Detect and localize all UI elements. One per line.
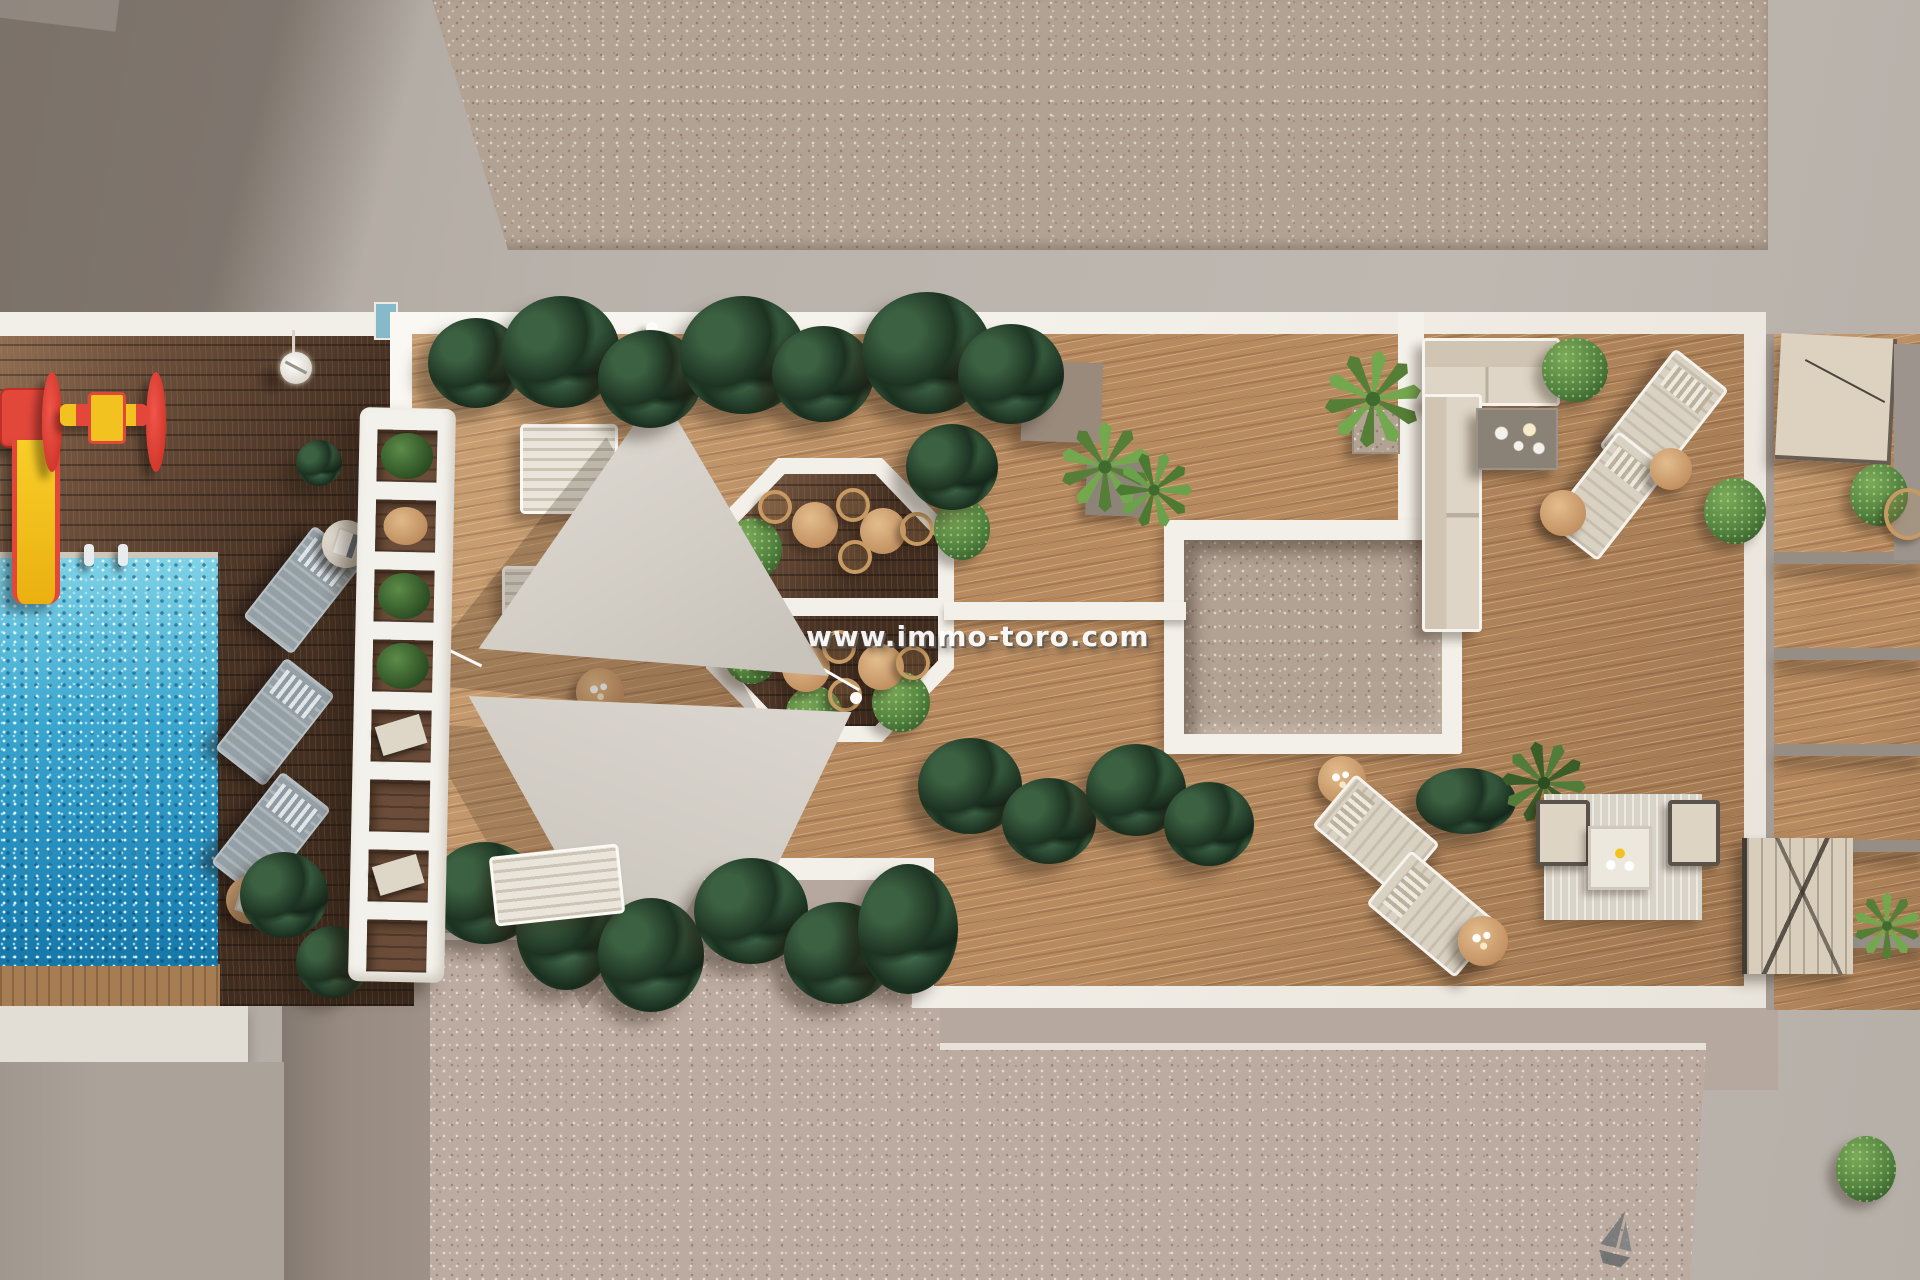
playground-roller-seat (88, 392, 126, 444)
deck-palm-2 (1114, 450, 1194, 530)
lounge-side-table-2 (1540, 490, 1586, 536)
playground-roller-wheel-left (42, 372, 62, 472)
gravel-roof-strip-top (432, 0, 1768, 250)
white-slatted-pergola (348, 407, 456, 983)
pergola-opening-lounger-1 (371, 709, 432, 762)
sunlit-wood-strip (0, 964, 220, 1006)
pergola-opening-wood-2 (366, 919, 427, 972)
sofa-left-section (1422, 394, 1482, 632)
gravel-edge-highlight-right (940, 1043, 1706, 1050)
lounge-tray-table (1588, 826, 1652, 890)
pool-ladder-post-left (84, 544, 94, 566)
octagon-chair-2 (836, 488, 870, 522)
pergola-opening-plant-1 (376, 429, 437, 482)
plant-hedge-5 (772, 326, 874, 422)
plant-pool-deck-2 (240, 852, 328, 938)
terrace-partition-3 (1774, 744, 1920, 756)
concrete-bottom-left (0, 1062, 284, 1280)
sail-pole-right (850, 692, 862, 704)
terrace-palm (1852, 880, 1920, 972)
pool-ladder-post-right (118, 544, 128, 566)
plant-bottom-3 (598, 898, 704, 1012)
terrace-bush-2 (1836, 1136, 1896, 1202)
octagon-connector-walkway (944, 602, 1186, 620)
lounge-armchair-right (1668, 800, 1720, 866)
side-table-4 (1458, 916, 1508, 966)
octagon-chair-3 (900, 512, 934, 546)
white-wall-bottom-left (0, 1002, 248, 1062)
plant-octagon-corner (906, 424, 998, 510)
terrace-stairwell (1742, 838, 1853, 974)
plant-bottom-6 (858, 864, 958, 994)
pergola-opening-lounger-2 (368, 849, 429, 902)
octagon-table-1 (792, 502, 838, 548)
light-well-gravel (1184, 540, 1442, 734)
white-walkway-top-left (0, 312, 414, 336)
octagon-chair-1 (758, 490, 792, 524)
terrace-partition-2 (1774, 648, 1920, 660)
lounge-bush-1 (1542, 338, 1608, 402)
plant-pool-deck-1 (296, 440, 342, 486)
pergola-opening-wood-1 (369, 779, 430, 832)
watermark-text: www.immo-toro.com (806, 620, 1150, 653)
playground-roller-wheel-right (146, 372, 166, 472)
lounge-armchair-left (1536, 800, 1590, 866)
pergola-opening-table (375, 499, 436, 552)
pergola-opening-plant-3 (372, 639, 433, 692)
plant-mid-4 (1164, 782, 1254, 866)
lounge-side-table-1 (1650, 448, 1692, 490)
sun-lounger-bottom (489, 843, 626, 926)
deck-palm-3 (1322, 348, 1424, 450)
lounge-bush-2 (1704, 478, 1766, 544)
aerial-render: www.immo-toro.com (0, 0, 1920, 1280)
pergola-opening-plant-2 (374, 569, 435, 622)
swimming-pool (0, 558, 218, 966)
plant-mid-2 (1002, 778, 1096, 864)
octagon-chair-4 (838, 540, 872, 574)
plant-hedge-7 (958, 324, 1064, 424)
lounge-coffee-table (1476, 408, 1558, 470)
